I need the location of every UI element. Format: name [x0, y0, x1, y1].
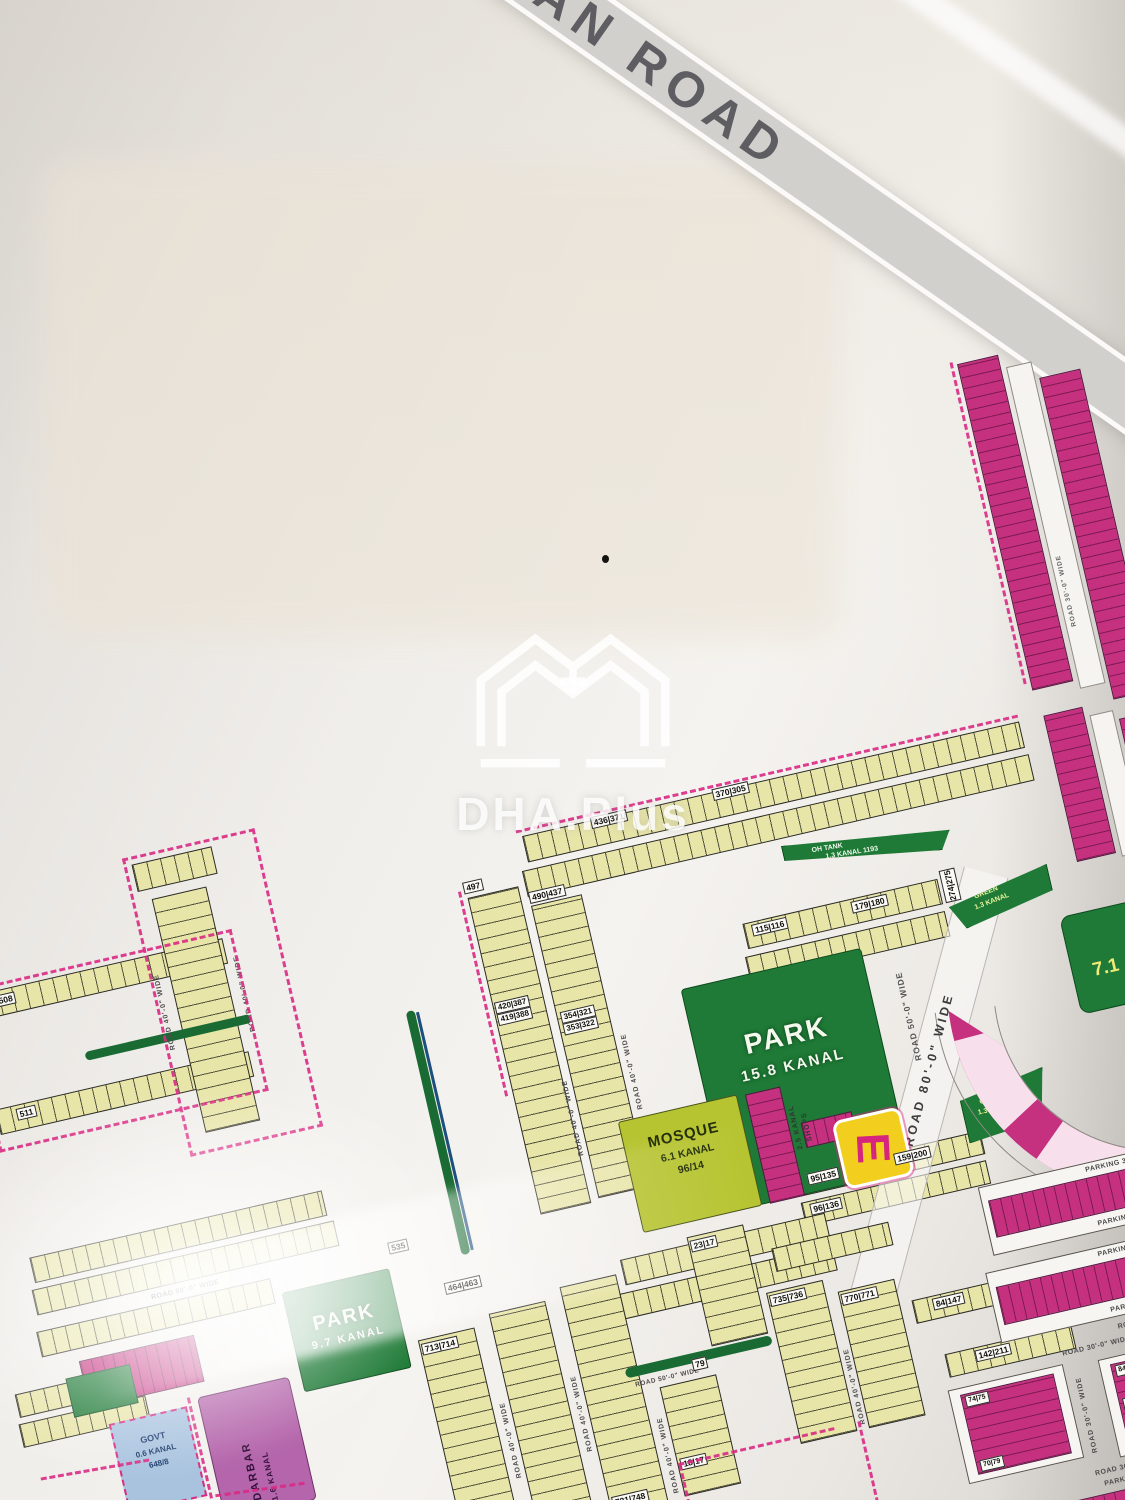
park-9-7: PARK 9.7 KANAL: [282, 1268, 412, 1392]
plot-number: 497: [462, 878, 484, 894]
park-right-area: 7.1: [1091, 954, 1122, 981]
mosque-block: MOSQUE 6.1 KANAL 96/14: [618, 1094, 763, 1233]
commercial-comb: [960, 1373, 1072, 1474]
boundary-dash: [857, 1421, 885, 1500]
blue-median: [416, 1012, 474, 1250]
commercial-block: 74|75 70|79: [948, 1364, 1085, 1484]
commercial-block: 84|85 83|86 80|89: [1098, 1335, 1125, 1458]
plot-number: 79: [691, 1356, 709, 1371]
commercial-comb: [1110, 1344, 1125, 1448]
map-photo: AN ROAD 436|371 370|305 OH TANK 1.3 KANA…: [0, 0, 1125, 1500]
block-e-letter: E: [849, 1132, 897, 1165]
plot-strip: [131, 846, 217, 892]
plot-number: 535: [387, 1238, 409, 1254]
govt-block: GOVT 0.6 KANAL 648/8: [109, 1406, 208, 1500]
road-label: ROAD 50'-0" WIDE: [889, 952, 923, 1061]
dust-speck: [602, 555, 609, 563]
plot-number: 464|463: [444, 1275, 483, 1295]
green-median: [406, 1010, 471, 1256]
darbar-block: DARBAR 1.6 KANAL: [197, 1377, 317, 1500]
park-right: 7.1: [1059, 876, 1125, 1015]
plot-number: 274|275: [939, 868, 962, 904]
